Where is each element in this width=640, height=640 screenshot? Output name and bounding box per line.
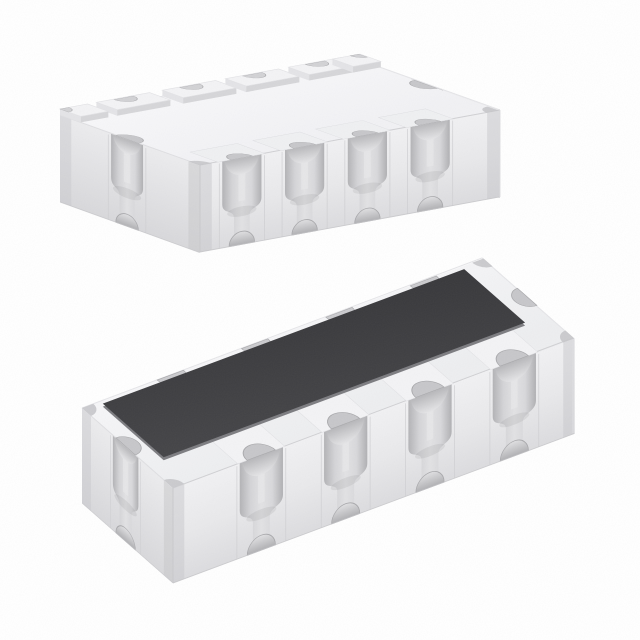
photo-canvas	[0, 0, 640, 640]
film-grain-overlay	[0, 0, 640, 640]
product-photo	[0, 0, 640, 640]
